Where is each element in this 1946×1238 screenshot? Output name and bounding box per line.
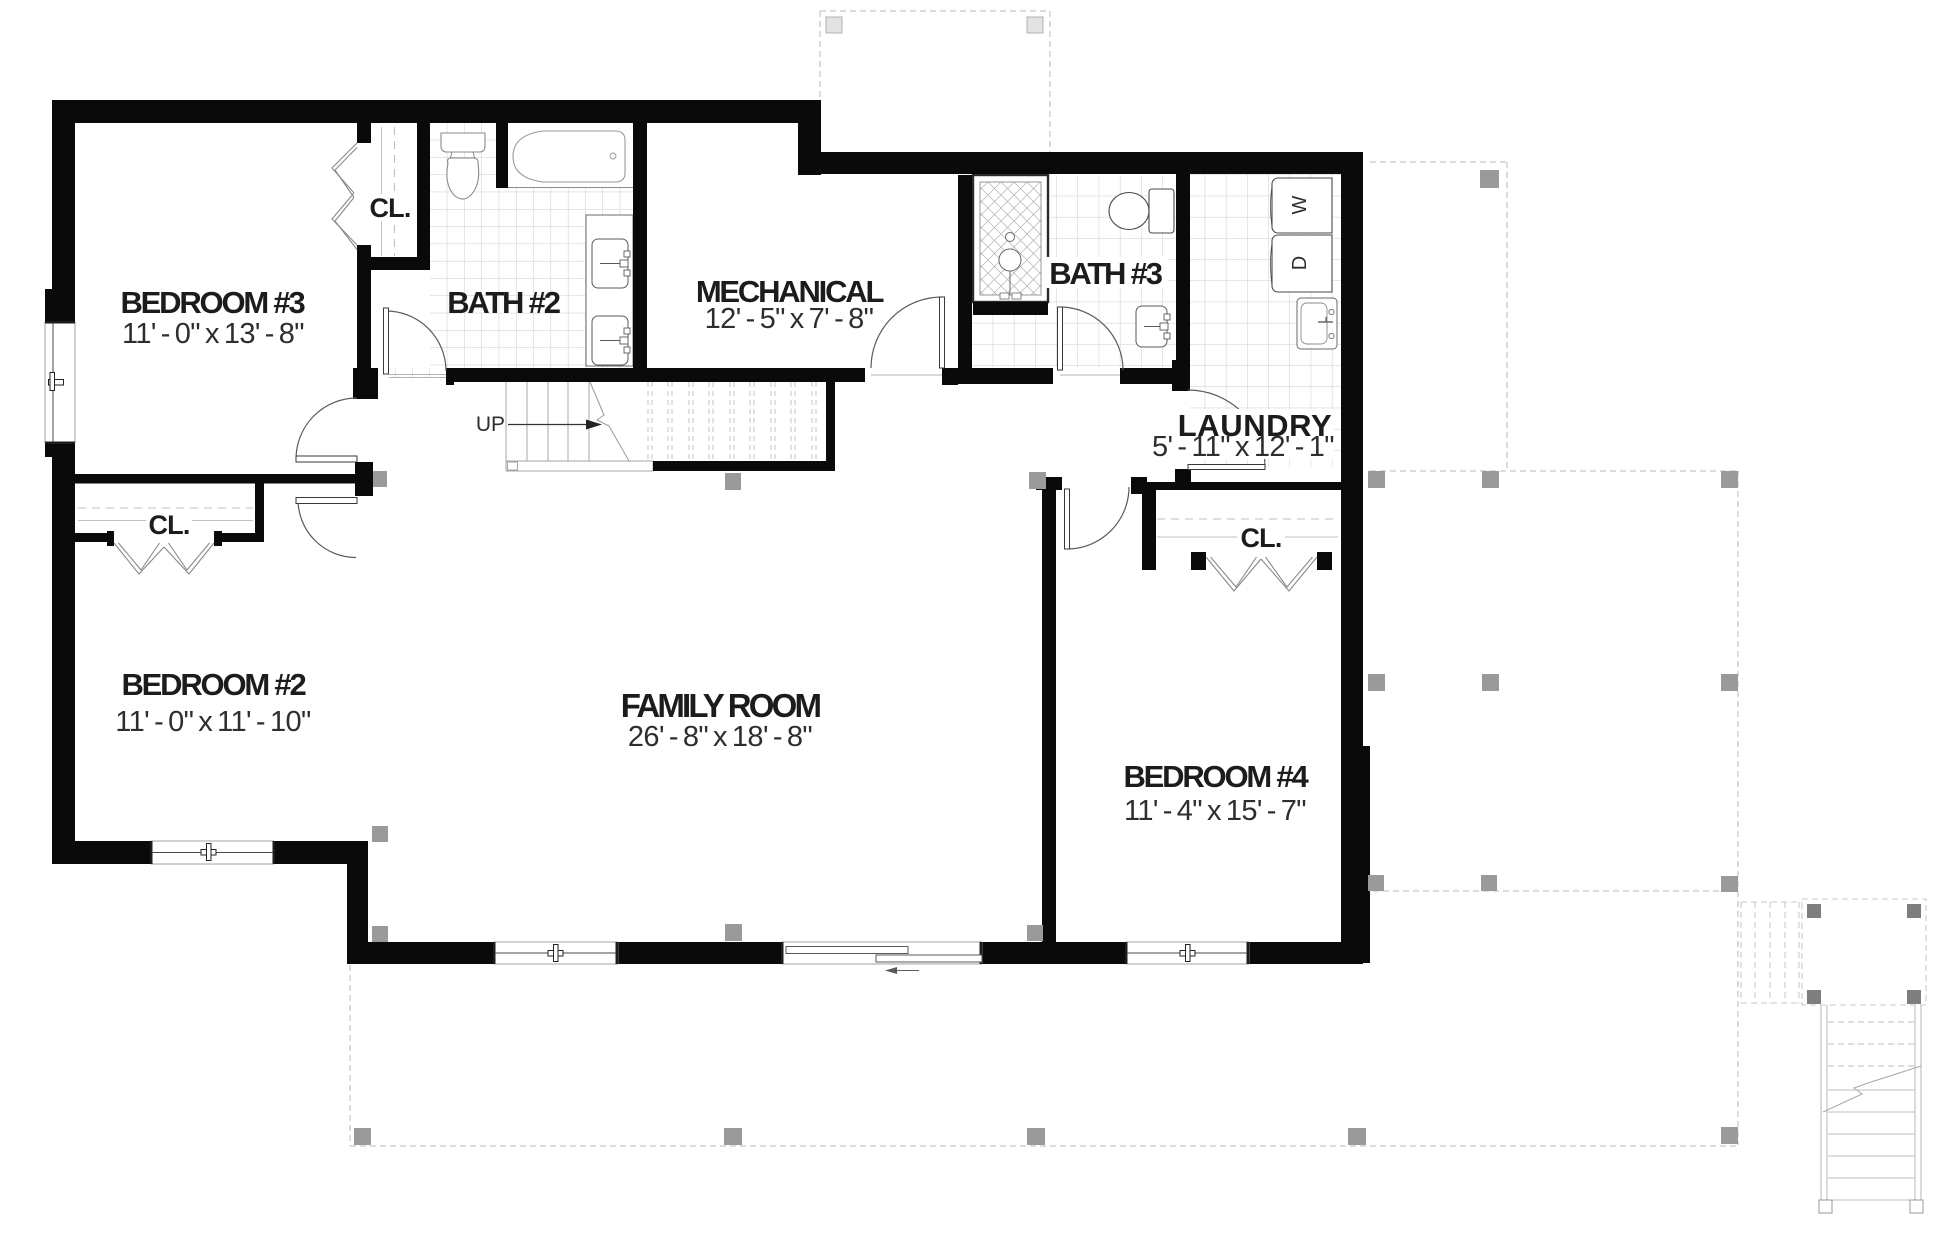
svg-text:CL.: CL. <box>148 510 189 540</box>
svg-text:26' - 8" x 18' - 8": 26' - 8" x 18' - 8" <box>628 721 812 753</box>
svg-text:BATH #3: BATH #3 <box>1049 256 1162 291</box>
svg-text:11' - 4" x 15' - 7": 11' - 4" x 15' - 7" <box>1124 795 1306 827</box>
svg-text:W: W <box>1289 195 1311 214</box>
svg-text:UP: UP <box>476 413 505 436</box>
svg-text:12' - 5" x 7' - 8": 12' - 5" x 7' - 8" <box>705 303 874 335</box>
svg-text:BEDROOM #3: BEDROOM #3 <box>121 285 306 320</box>
svg-text:CL.: CL. <box>369 193 410 223</box>
svg-text:5' - 11" x 12' - 1": 5' - 11" x 12' - 1" <box>1152 431 1334 463</box>
svg-text:D: D <box>1289 256 1311 270</box>
svg-text:11' - 0" x 11' - 10": 11' - 0" x 11' - 10" <box>115 706 311 738</box>
svg-text:BATH #2: BATH #2 <box>447 285 559 320</box>
svg-text:BEDROOM #4: BEDROOM #4 <box>1124 759 1310 794</box>
svg-text:11' - 0" x 13' - 8": 11' - 0" x 13' - 8" <box>122 318 304 350</box>
svg-text:CL.: CL. <box>1240 523 1281 553</box>
svg-text:FAMILY ROOM: FAMILY ROOM <box>621 687 821 724</box>
svg-text:BEDROOM #2: BEDROOM #2 <box>122 667 306 702</box>
